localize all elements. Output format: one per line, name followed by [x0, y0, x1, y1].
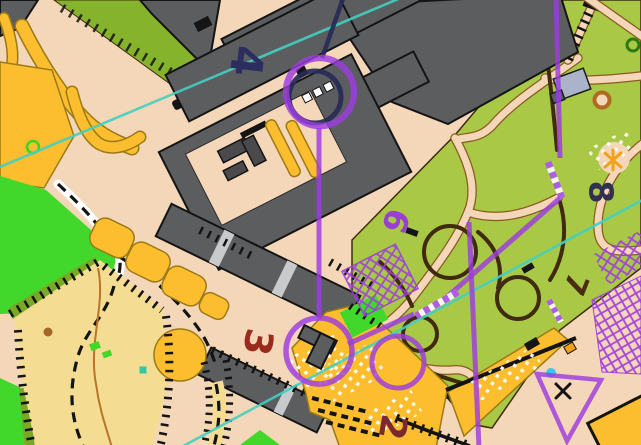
control-number-8: 8	[581, 180, 621, 204]
flowerbed-ring	[595, 93, 610, 108]
canopy-round	[154, 329, 206, 381]
control-number-4: 4	[219, 43, 273, 80]
brown-knoll-dot	[44, 328, 53, 337]
map-canvas[interactable]: 4 3 6 8 2 7	[0, 0, 641, 445]
teal-marker	[140, 367, 147, 374]
